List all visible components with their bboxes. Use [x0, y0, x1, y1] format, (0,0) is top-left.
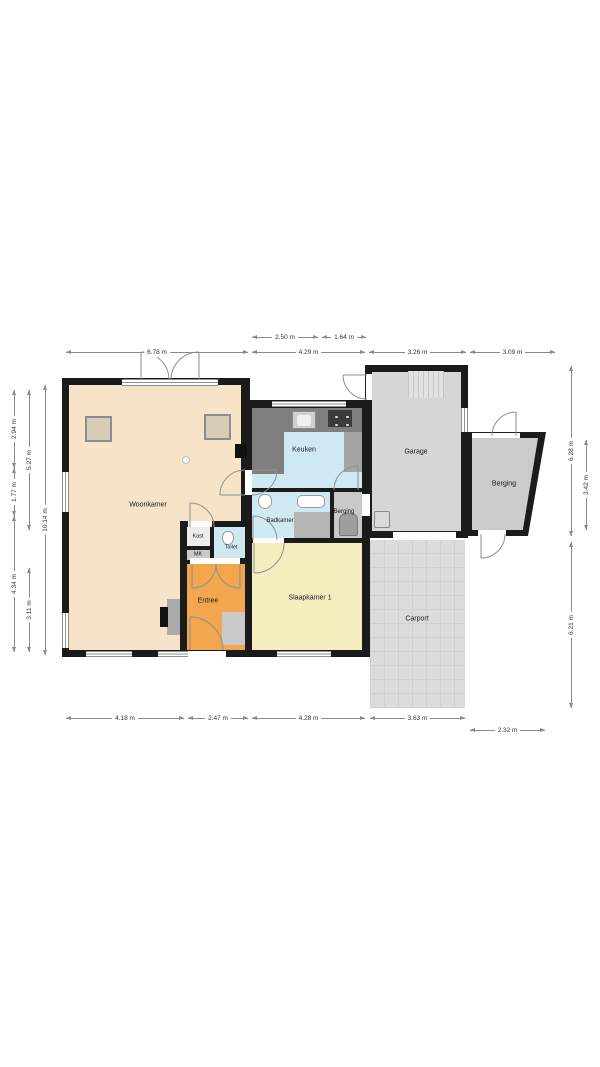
door-arcs — [0, 0, 600, 1067]
label-mk: MK — [194, 552, 202, 558]
dim-top-429: 4.29 m — [252, 352, 365, 353]
label-berging-mid: Berging — [334, 509, 355, 515]
label-slaapkamer-1: Slaapkamer 1 — [288, 595, 331, 602]
label-carport: Carport — [405, 616, 428, 623]
label-keuken: Keuken — [292, 447, 316, 454]
dim-bottom-247: 2.47 m — [188, 718, 248, 719]
dim-right-628: 6.28 m — [571, 366, 572, 536]
dim-top-inner-250: 2.50 m — [252, 337, 318, 338]
dim-right-621: 6.21 m — [571, 542, 572, 708]
dim-left-177: 1.77 m — [14, 468, 15, 516]
label-garage: Garage — [404, 449, 427, 456]
dim-right-342: 3.42 m — [586, 440, 587, 530]
dim-bottom-363: 3.63 m — [370, 718, 465, 719]
dim-bottom-418: 4.18 m — [66, 718, 184, 719]
dim-top-309: 3.09 m — [470, 352, 555, 353]
dim-left-311: 3.11 m — [29, 568, 30, 652]
dim-left-434: 4.34 m — [14, 516, 15, 652]
dim-left-527: 5.27 m — [29, 390, 30, 530]
floorplan-canvas: Woonkamer Keuken Badkamer Berging Kast M… — [0, 0, 600, 1067]
label-kast: Kast — [192, 534, 203, 540]
dim-top-678: 6.78 m — [66, 352, 248, 353]
label-berging-right: Berging — [492, 481, 516, 488]
dim-left-294: 2.94 m — [14, 390, 15, 468]
dim-bottom-428: 4.28 m — [252, 718, 365, 719]
dim-left-total-1014: 10.14 m — [45, 385, 46, 655]
label-woonkamer: Woonkamer — [129, 502, 167, 509]
dim-bottom-232: 2.32 m — [470, 730, 545, 731]
label-badkamer: Badkamer — [266, 518, 293, 524]
label-entree: Entree — [198, 598, 219, 605]
dim-top-inner-164: 1.64 m — [322, 337, 366, 338]
dim-top-326: 3.26 m — [369, 352, 466, 353]
label-toilet: Toilet — [225, 545, 238, 551]
